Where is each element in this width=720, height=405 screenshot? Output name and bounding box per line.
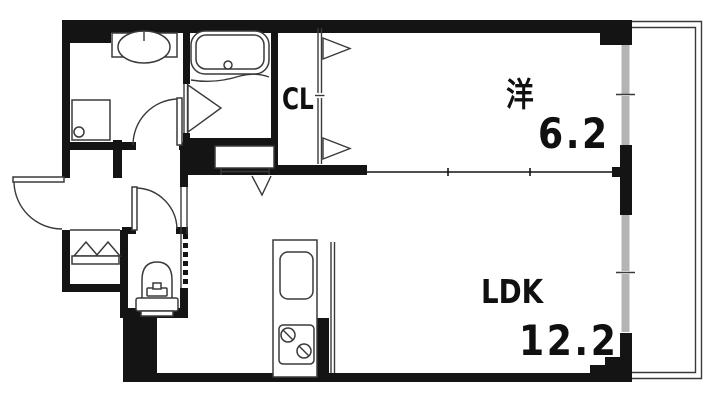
- western-room-area: 6.2: [538, 113, 610, 155]
- bathroom-folding-door: [184, 84, 221, 133]
- washroom-door: [133, 98, 182, 145]
- bathtub: [191, 31, 269, 81]
- floor-plan: 洋 6.2 CL LDK 12.2: [0, 0, 720, 405]
- kitchen-sink: [280, 252, 313, 299]
- hall-ldk-opening: [181, 187, 187, 234]
- toilet-door: [132, 187, 177, 230]
- gas-stove: [279, 325, 314, 364]
- ldk-label: LDK: [481, 275, 543, 308]
- sliding-partition: [367, 168, 612, 176]
- closet-label: CL: [282, 85, 314, 114]
- shoe-cabinet: [70, 230, 120, 264]
- wash-basin: [112, 31, 177, 63]
- balcony: [632, 22, 702, 379]
- toilet-side-hatch: [181, 234, 186, 288]
- ldk-area: 12.2: [519, 320, 618, 362]
- closet-folding-door: [315, 28, 350, 164]
- washing-machine-pan: [72, 100, 110, 140]
- western-room-label: 洋: [506, 78, 534, 111]
- toilet: [136, 262, 178, 316]
- entrance-door: [13, 177, 64, 229]
